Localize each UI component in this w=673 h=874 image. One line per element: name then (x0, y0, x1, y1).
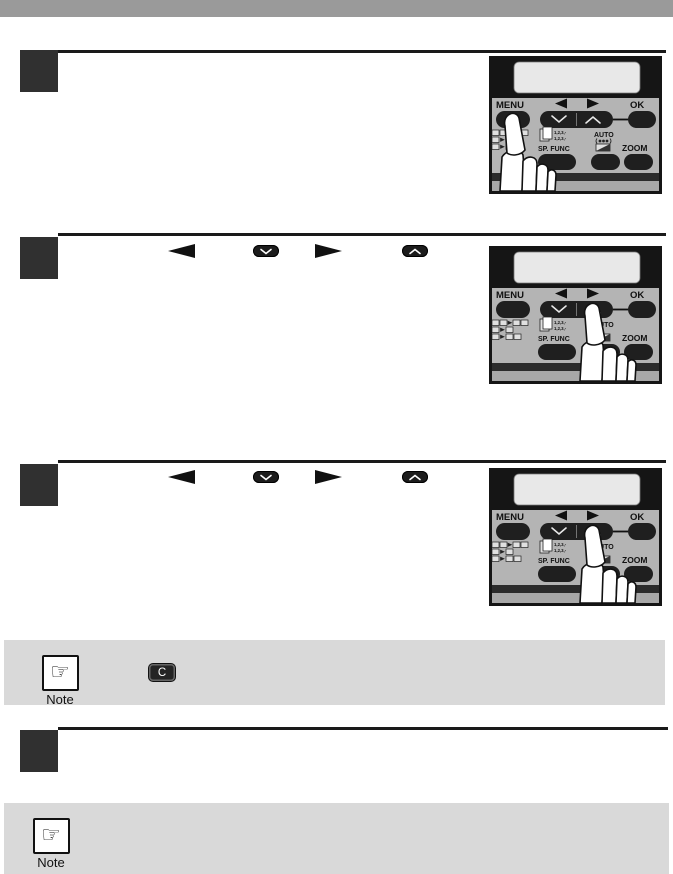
lcd-display (514, 474, 640, 505)
note-icon: ☞ (42, 655, 79, 691)
menu-label: MENU (496, 512, 524, 523)
step-1-number-box (20, 50, 58, 92)
note-box-2: ☞ Note (4, 803, 669, 874)
ok-label: OK (630, 512, 644, 523)
sort-icon (540, 317, 552, 331)
zoom-button (624, 154, 653, 170)
exposure-original-icon (596, 144, 610, 151)
sort-text-1: 1,2,3,- (554, 320, 567, 325)
step-3-rule (58, 460, 666, 463)
control-panel-illustration-step1: MENU OK 1,2,3,- 1,2,3,- SP. FUNC AUTO (489, 56, 662, 194)
step-2-number-box (20, 237, 58, 279)
ok-button (628, 111, 656, 128)
sort-text-2: 1,2,3,- (554, 136, 567, 141)
pointing-hand-icon: ☞ (41, 825, 61, 847)
control-panel-illustration-step2: MENU OK 1,2,3,- 1,2,3,- SP. FUNC AUTO (489, 246, 662, 384)
sp-func-label: SP. FUNC (538, 336, 570, 343)
menu-button (496, 523, 530, 540)
auto-label: AUTO (594, 132, 614, 139)
step-3-number-box (20, 464, 58, 506)
right-arrow-key-icon (315, 470, 342, 484)
zoom-label: ZOOM (622, 143, 648, 153)
down-chevron-key-icon (253, 245, 279, 257)
sort-text-1: 1,2,3,- (554, 542, 567, 547)
note-label: Note (40, 692, 80, 707)
ok-label: OK (630, 100, 644, 111)
lcd-display (514, 62, 640, 93)
note-box-1: ☞ Note C (4, 640, 665, 705)
note-icon: ☞ (33, 818, 70, 854)
down-chevron-glyph (259, 248, 273, 255)
step-4-number-box (20, 730, 58, 772)
ok-button (628, 301, 656, 318)
sort-text-2: 1,2,3,- (554, 326, 567, 331)
clear-key-icon: C (149, 664, 175, 681)
menu-label: MENU (496, 100, 524, 111)
step-2-rule (58, 233, 666, 236)
sp-func-label: SP. FUNC (538, 558, 570, 565)
menu-button (496, 301, 530, 318)
sort-text-2: 1,2,3,- (554, 548, 567, 553)
up-chevron-key-icon (402, 471, 428, 483)
up-chevron-glyph (408, 474, 422, 481)
up-chevron-key-icon (402, 245, 428, 257)
lcd-display (514, 252, 640, 283)
menu-label: MENU (496, 290, 524, 301)
right-arrow-key-icon (315, 244, 342, 258)
left-arrow-key-icon (168, 470, 195, 484)
pointing-hand-icon: ☞ (50, 662, 70, 684)
down-chevron-glyph (259, 474, 273, 481)
note-badge: ☞ Note (31, 818, 71, 870)
zoom-label: ZOOM (622, 333, 648, 343)
step-4-rule (58, 727, 668, 730)
down-chevron-key-icon (253, 471, 279, 483)
sort-text-1: 1,2,3,- (554, 130, 567, 135)
left-arrow-key-icon (168, 244, 195, 258)
sp-func-button (538, 344, 576, 360)
zoom-label: ZOOM (622, 555, 648, 565)
control-panel-illustration-step3: MENU OK 1,2,3,- 1,2,3,- SP. FUNC AUTO (489, 468, 662, 606)
page-header-bar (0, 0, 673, 17)
note-label: Note (31, 855, 71, 870)
sort-icon (540, 539, 552, 553)
note-badge: ☞ Note (40, 655, 80, 707)
step-1-rule (58, 50, 666, 53)
ok-button (628, 523, 656, 540)
clear-key-label: C (158, 667, 166, 679)
sp-func-button (538, 566, 576, 582)
up-chevron-glyph (408, 248, 422, 255)
sp-func-label: SP. FUNC (538, 146, 570, 153)
auto-button (591, 154, 620, 170)
sort-icon (540, 127, 552, 141)
ok-label: OK (630, 290, 644, 301)
manual-page: MENU OK 1,2,3,- 1,2,3,- SP. FUNC AUTO (0, 0, 673, 874)
